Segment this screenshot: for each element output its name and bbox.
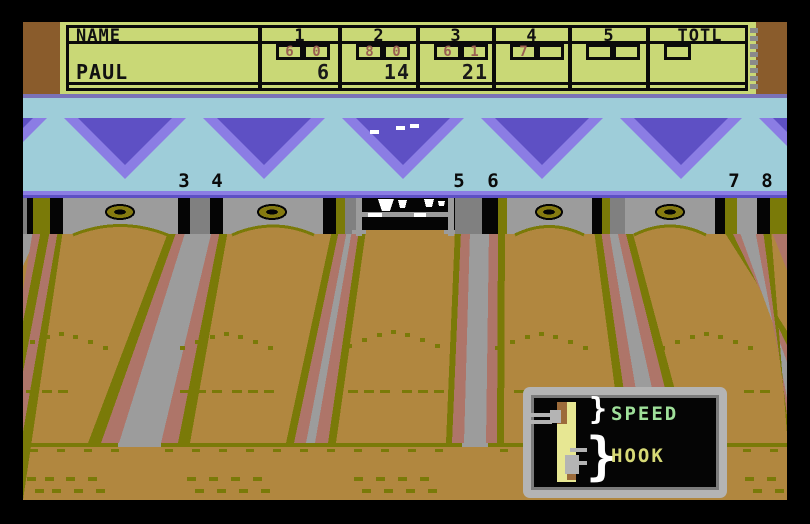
lane-number-6: 6: [482, 170, 504, 190]
light-glint: [410, 124, 419, 128]
speed-pointer: [550, 410, 561, 423]
card-serration: [750, 36, 758, 41]
f1-roll1: 6: [279, 47, 300, 58]
speed-pointer-prong: [530, 413, 552, 417]
frame-2-header: 2: [369, 26, 389, 46]
f3-roll1: 6: [437, 47, 458, 58]
frame-4-header: 4: [522, 26, 542, 46]
f3-roll2: 1: [464, 47, 485, 58]
card-serration: [750, 84, 758, 89]
light-glint: [370, 130, 379, 134]
f1-roll2: 0: [306, 47, 327, 58]
lane-number-8: 8: [756, 170, 778, 190]
col-divider: [568, 25, 572, 88]
card-serration: [750, 60, 758, 65]
pennant-triangle: [64, 118, 186, 179]
col-divider: [492, 25, 496, 88]
f3-cum: 21: [420, 60, 488, 84]
panel-face: } } SPEED HOOK: [534, 398, 716, 487]
panel-frame: } } SPEED HOOK: [531, 395, 719, 490]
total-header: TOTL: [667, 26, 733, 46]
lane-number-3: 3: [173, 170, 195, 190]
frame-5-header: 5: [599, 26, 619, 46]
pinsetter-machine: [507, 198, 592, 235]
hook-label: HOOK: [611, 445, 665, 467]
card-serration: [750, 68, 758, 73]
pinsetter-machine: [63, 198, 178, 235]
pinsetter-machine: [625, 198, 715, 235]
lane-number-5: 5: [448, 170, 470, 190]
frame-1-header: 1: [290, 26, 310, 46]
player-name: PAUL: [76, 60, 128, 84]
lane-number-4: 4: [206, 170, 228, 190]
frame-3-header: 3: [446, 26, 466, 46]
speed-label: SPEED: [611, 403, 678, 425]
card-serration: [750, 52, 758, 57]
card-serration: [750, 44, 758, 49]
scorecard: NAME 1 2 3 4 5 TOTL PAUL 6 0 6 8 0 14 6 …: [60, 22, 756, 94]
pennant-band: 3 4 5 6 7 8: [23, 98, 787, 191]
light-glint: [396, 126, 405, 130]
card-serration: [750, 76, 758, 81]
game-display: NAME 1 2 3 4 5 TOTL PAUL 6 0 6 8 0 14 6 …: [23, 22, 787, 500]
hook-pointer: [565, 455, 579, 474]
lane-number-7: 7: [723, 170, 745, 190]
name-header: NAME: [76, 26, 121, 46]
f2-cum: 14: [342, 60, 410, 84]
card-serration: [750, 28, 758, 33]
speed-hook-panel: } } SPEED HOOK: [523, 387, 727, 498]
speed-brace-icon: }: [589, 395, 607, 425]
col-divider: [646, 25, 650, 88]
f1-cum: 6: [262, 60, 330, 84]
pennant-triangle: [23, 118, 47, 179]
pin: [438, 201, 445, 206]
f2-roll2: 0: [386, 47, 407, 58]
hook-pointer-prong: [570, 448, 587, 452]
c64-bowling-screen: NAME 1 2 3 4 5 TOTL PAUL 6 0 6 8 0 14 6 …: [0, 0, 810, 524]
pinsetter-machine: [223, 198, 323, 235]
f4-roll1: 7: [513, 47, 534, 58]
f2-roll1: 8: [359, 47, 380, 58]
speed-pointer-prong: [530, 420, 552, 424]
